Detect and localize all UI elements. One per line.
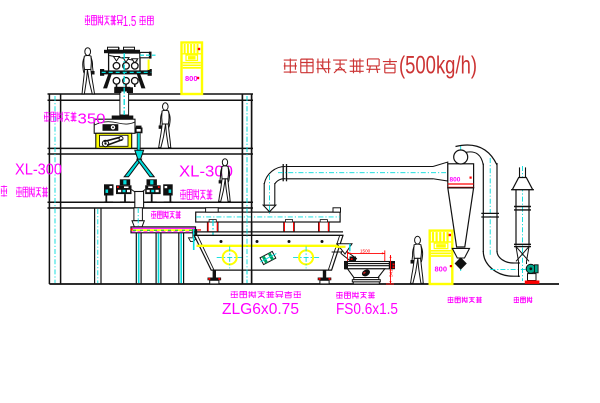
svg-text:(500kg/h): (500kg/h)	[399, 52, 477, 80]
svg-text:FS0.6x1.5: FS0.6x1.5	[336, 301, 398, 318]
svg-text:800: 800	[435, 265, 448, 274]
svg-text:XL-300: XL-300	[15, 162, 62, 179]
svg-text:800: 800	[185, 74, 198, 83]
svg-text:1500: 1500	[360, 248, 371, 253]
svg-text:541: 541	[388, 269, 393, 277]
svg-text:ZLG6x0.75: ZLG6x0.75	[222, 301, 299, 318]
svg-text:350: 350	[78, 112, 106, 128]
svg-text:1.5: 1.5	[123, 13, 137, 30]
svg-text:800: 800	[450, 177, 461, 184]
